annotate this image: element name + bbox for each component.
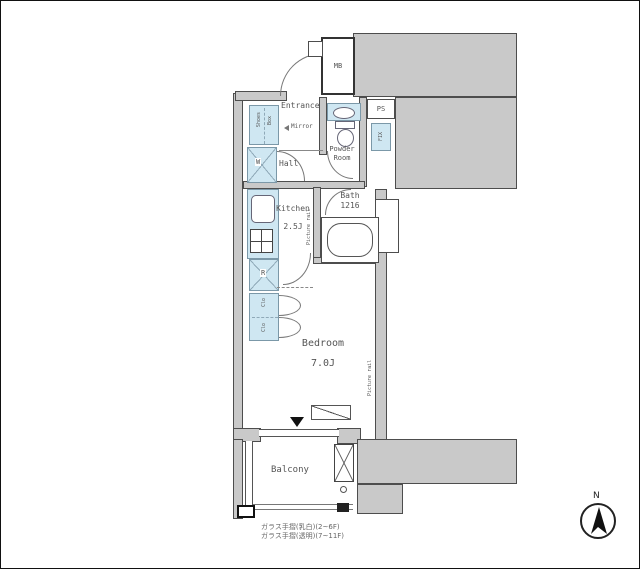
bedroom-door-arc <box>283 253 311 285</box>
kitchen-sink <box>251 195 275 223</box>
wall-left <box>233 93 243 439</box>
glass-railing-note-line1: ガラス手摺(乳白)(2~6F) <box>261 523 344 532</box>
north-arrow-icon <box>580 503 616 539</box>
closet-bifold-door-lower <box>279 317 301 338</box>
shoes-box-shelf-line <box>264 108 265 144</box>
wall-bottom-right-a <box>357 439 517 484</box>
bedroom-window <box>259 429 339 437</box>
entrance-door-arc <box>280 53 323 96</box>
shoes-box-label-1: Shoes <box>256 112 262 127</box>
washing-machine <box>247 147 277 183</box>
bath-label-size: 1216 <box>327 201 373 211</box>
bath-label-name: Bath <box>327 191 373 201</box>
mirror-arrow-icon <box>284 125 289 131</box>
meter-box: MB <box>321 37 355 95</box>
stove <box>250 229 273 253</box>
floor-plan: MB PS FIX Shoes Box W R Clo Clo <box>0 0 640 569</box>
balcony-drain-circle <box>340 486 347 493</box>
refrigerator-label: R <box>260 269 266 277</box>
fix-window-label: FIX <box>378 132 384 141</box>
wall-bottom-right-b <box>357 484 403 514</box>
wall-right-column <box>395 97 517 189</box>
shoes-box-label-2: Box <box>267 116 273 125</box>
entrance-step-line <box>279 150 323 151</box>
glass-railing-note: ガラス手摺(乳白)(2~6F) ガラス手摺(透明)(7~11F) <box>261 523 344 541</box>
wall-kitchen-bath <box>313 187 321 263</box>
picture-rail-kitchen-label: Picture rail <box>306 187 312 245</box>
pipe-space: PS <box>367 99 395 119</box>
powder-label-line1: Powder <box>321 145 363 154</box>
wash-basin-bowl <box>333 107 355 119</box>
wall-top-right-block <box>353 33 517 97</box>
fix-window: FIX <box>371 123 391 151</box>
bedroom-label-size: 7.0J <box>291 358 355 370</box>
room-bath-label: Bath 1216 <box>327 191 373 211</box>
closet-divider <box>252 317 278 318</box>
balcony-drain-box <box>337 503 349 512</box>
room-powder-label: Powder Room <box>321 145 363 163</box>
powder-label-line2: Room <box>321 154 363 163</box>
bathtub <box>327 223 373 257</box>
compass: N <box>576 491 620 547</box>
meter-box-label: MB <box>334 62 342 70</box>
glass-railing-note-line2: ガラス手摺(透明)(7~11F) <box>261 532 344 541</box>
shoes-box: Shoes Box <box>249 105 279 145</box>
closet: Clo Clo <box>249 293 279 341</box>
balcony-side-window <box>245 441 253 505</box>
bedroom-label-name: Bedroom <box>291 338 355 350</box>
air-conditioner <box>311 405 351 420</box>
closet-bifold-door-upper <box>279 295 301 316</box>
room-balcony-label: Balcony <box>271 465 309 475</box>
entrance-door-leaf <box>308 41 323 57</box>
kitchen-bedroom-boundary <box>277 287 313 288</box>
mirror-label: Mirror <box>291 123 313 130</box>
compass-north-label: N <box>593 491 600 501</box>
pipe-space-label: PS <box>377 105 385 113</box>
closet-lower-label: Clo <box>261 323 267 332</box>
closet-upper-label: Clo <box>261 298 267 307</box>
room-hall-label: Hall <box>279 159 298 168</box>
picture-rail-bedroom-label: Picture rail <box>367 326 373 396</box>
window-marker-icon <box>290 417 304 427</box>
room-bedroom-label: Bedroom 7.0J <box>291 338 355 370</box>
room-entrance-label: Entrance <box>281 101 320 110</box>
washing-machine-label: W <box>255 158 261 166</box>
balcony-corner-footing <box>237 505 255 518</box>
toilet-tank <box>335 121 355 129</box>
balcony-hatch <box>334 444 354 482</box>
